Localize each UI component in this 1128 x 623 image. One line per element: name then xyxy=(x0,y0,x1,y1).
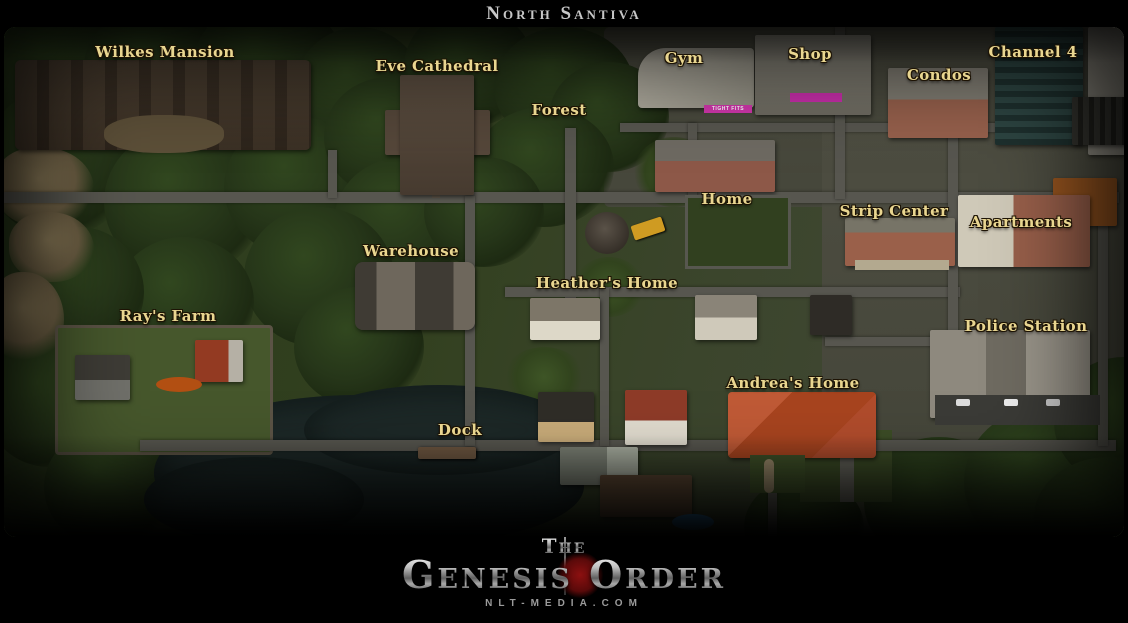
map-location-home[interactable]: Home xyxy=(701,190,752,208)
house xyxy=(538,392,594,442)
dock-pier xyxy=(418,447,476,459)
warehouse-building xyxy=(355,262,475,330)
north-santiva-map: TIGHT FITS xyxy=(4,27,1124,537)
map-location-condos[interactable]: Condos xyxy=(907,66,971,84)
map-location-shop[interactable]: Shop xyxy=(788,45,832,63)
map-location-dock[interactable]: Dock xyxy=(438,421,482,439)
website-url: NLT-MEDIA.COM xyxy=(485,598,643,609)
neighbor-house xyxy=(695,295,757,340)
dark-tower xyxy=(1072,97,1124,145)
map-location-gym[interactable]: Gym xyxy=(665,49,704,67)
farm-shed xyxy=(75,355,130,400)
water-tower xyxy=(585,212,629,254)
car xyxy=(1046,399,1060,406)
car xyxy=(1004,399,1018,406)
game-map-screen: North Santiva xyxy=(0,0,1128,623)
gym-sign: TIGHT FITS xyxy=(704,105,752,113)
strip-center-building xyxy=(845,218,955,266)
road xyxy=(565,128,576,298)
map-location-police-station[interactable]: Police Station xyxy=(965,317,1088,335)
farm-barn xyxy=(195,340,243,382)
home-brick-building xyxy=(655,140,775,192)
title-bar: North Santiva xyxy=(0,0,1128,27)
car xyxy=(956,399,970,406)
logo-the: The xyxy=(542,537,587,555)
map-location-andreas-home[interactable]: Andrea's Home xyxy=(726,374,859,392)
map-location-rays-farm[interactable]: Ray's Farm xyxy=(120,307,217,325)
map-location-forest[interactable]: Forest xyxy=(531,101,586,119)
eve-cathedral-building xyxy=(400,75,474,195)
farm-canopy xyxy=(156,377,202,392)
swimming-pool xyxy=(672,514,714,530)
logo-title: Genesis Order xyxy=(402,555,726,595)
map-location-heathers-home[interactable]: Heather's Home xyxy=(536,274,678,292)
map-location-apartments[interactable]: Apartments xyxy=(970,213,1072,231)
garden-path xyxy=(764,459,774,493)
shop-sign xyxy=(790,93,842,102)
heathers-home-house xyxy=(530,298,600,340)
andreas-home-building xyxy=(728,392,876,458)
map-location-eve-cathedral[interactable]: Eve Cathedral xyxy=(376,57,499,75)
brown-building xyxy=(600,475,692,517)
game-logo: Genesis Order xyxy=(402,555,726,595)
andreas-home-lawn xyxy=(750,455,805,493)
red-roof-house xyxy=(625,390,687,445)
map-location-strip-center[interactable]: Strip Center xyxy=(840,202,949,220)
map-location-warehouse[interactable]: Warehouse xyxy=(363,242,459,260)
map-location-channel-4[interactable]: Channel 4 xyxy=(989,43,1078,61)
map-location-wilkes-mansion[interactable]: Wilkes Mansion xyxy=(95,43,234,61)
map-title: North Santiva xyxy=(486,3,641,25)
dark-shed xyxy=(810,295,852,335)
apartments-building xyxy=(958,195,1090,267)
lake xyxy=(144,457,364,537)
strip-center-awning xyxy=(855,260,949,270)
wilkes-mansion-courtyard xyxy=(104,115,224,153)
footer: The Genesis Order NLT-MEDIA.COM xyxy=(0,535,1128,623)
road xyxy=(600,288,609,446)
road xyxy=(328,150,337,198)
